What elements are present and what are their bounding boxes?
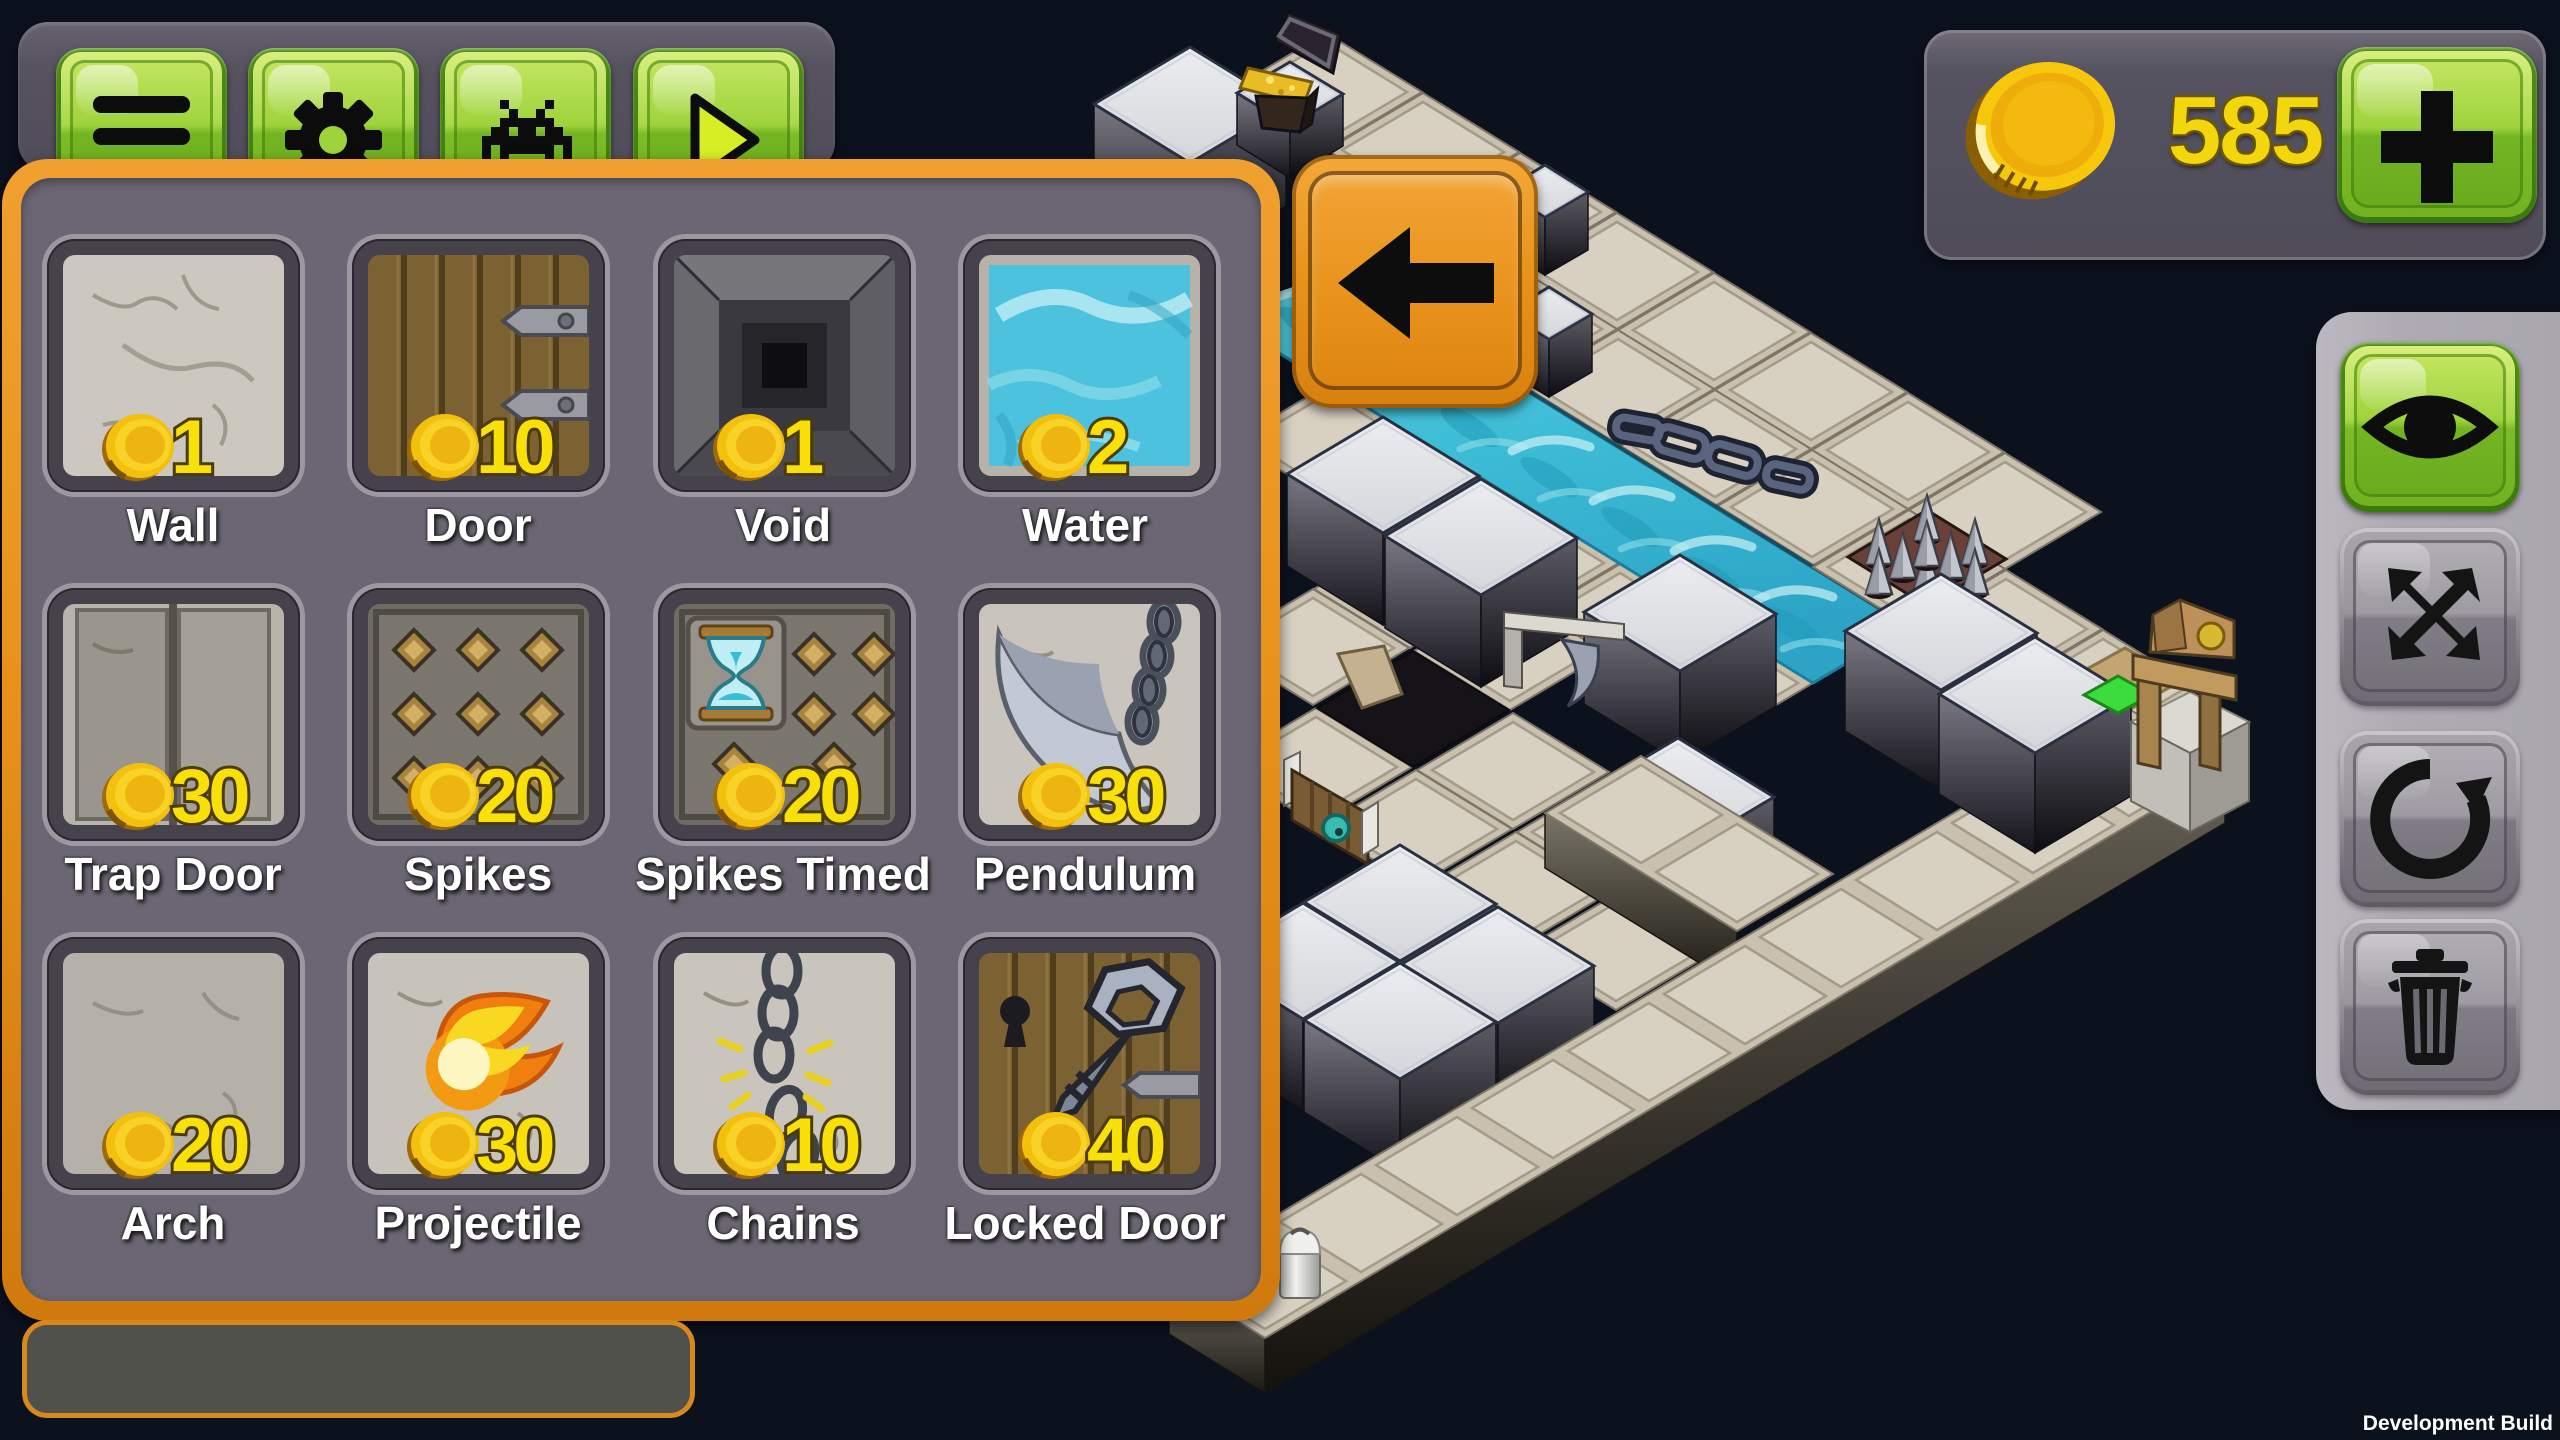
svg-text:1: 1 xyxy=(171,405,212,490)
svg-text:10: 10 xyxy=(476,405,553,490)
svg-text:20: 20 xyxy=(476,754,553,839)
svg-text:30: 30 xyxy=(476,1103,553,1188)
svg-text:20: 20 xyxy=(171,1103,248,1188)
svg-text:30: 30 xyxy=(1087,754,1164,839)
svg-text:2: 2 xyxy=(1087,405,1127,490)
svg-text:30: 30 xyxy=(171,754,248,839)
svg-text:40: 40 xyxy=(1087,1103,1164,1188)
svg-text:10: 10 xyxy=(782,1103,859,1188)
svg-text:20: 20 xyxy=(782,754,859,839)
svg-text:1: 1 xyxy=(782,405,823,490)
